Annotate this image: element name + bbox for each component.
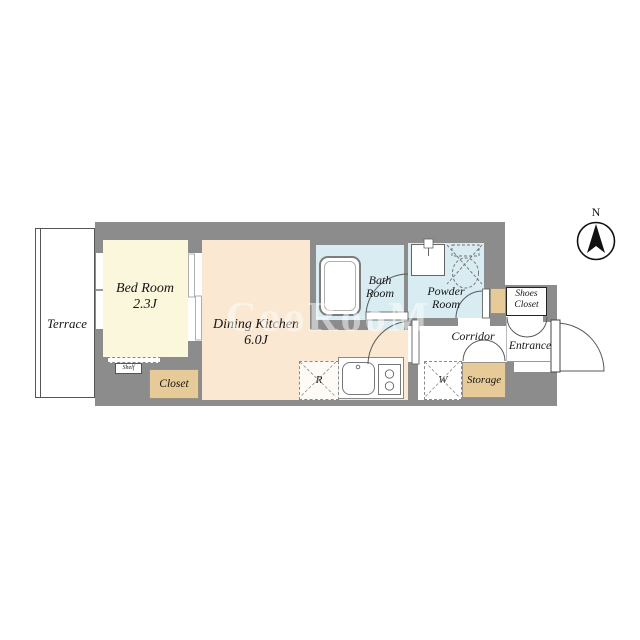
bath-room-label: Bath Room [352, 274, 408, 301]
corridor-label: Corridor [436, 330, 510, 343]
floorplan: R W Closet Storage Shoes Closet Shelf [0, 0, 640, 640]
kitchen-door-arc [368, 321, 412, 364]
entrance-door-arc [556, 323, 604, 371]
toilet [447, 245, 482, 288]
terrace-label: Terrace [38, 317, 96, 332]
north-compass-icon [578, 223, 615, 260]
appliance-crosses [300, 362, 459, 397]
fixtures-overlay [0, 0, 640, 640]
shoes-closet-doors-arc [507, 317, 547, 337]
compass-label: N [586, 206, 606, 219]
bath-door-leaf [366, 312, 408, 320]
powder-room-label: Powder Room [406, 285, 486, 312]
dining-kitchen-label: Dining Kitchen 6.0J [200, 317, 312, 348]
stove-burners [385, 370, 393, 390]
powder-faucet [424, 239, 433, 256]
kitchen-door-leaf [412, 320, 419, 364]
sink-faucet [356, 365, 360, 369]
entrance-label: Entrance [500, 340, 560, 353]
bedroom-label: Bed Room 2.3J [101, 281, 189, 312]
